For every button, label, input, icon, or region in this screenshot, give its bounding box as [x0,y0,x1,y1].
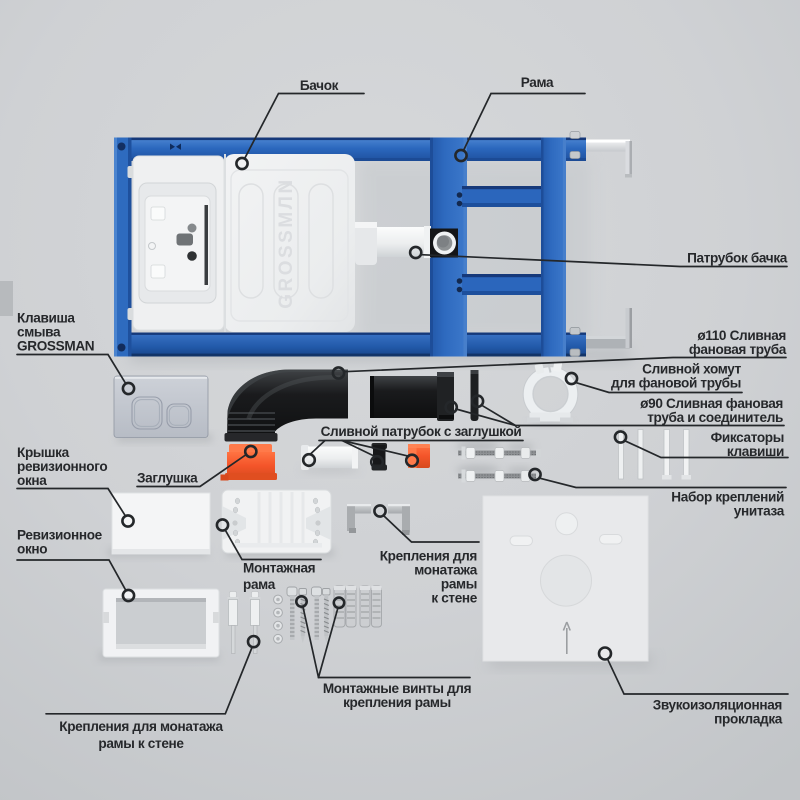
svg-text:рамы к стене: рамы к стене [98,736,184,751]
svg-text:к стене: к стене [431,591,477,606]
svg-text:Ревизионное: Ревизионное [17,528,103,543]
svg-text:труба и соединитель: труба и соединитель [647,410,783,425]
svg-text:Крепления для монатажа: Крепления для монатажа [59,719,223,734]
svg-text:унитаза: унитаза [734,504,785,519]
svg-text:Крышка: Крышка [17,445,70,460]
svg-text:GROSSMAN: GROSSMAN [17,339,94,354]
svg-text:прокладка: прокладка [714,712,783,727]
svg-text:Крепления для: Крепления для [380,549,477,564]
svg-text:Монтажные винты для: Монтажные винты для [323,681,471,696]
svg-text:Клавиша: Клавиша [17,311,75,326]
svg-text:Набор креплений: Набор креплений [671,490,784,505]
svg-text:Звукоизоляционная: Звукоизоляционная [653,698,782,713]
svg-text:Бачок: Бачок [300,78,339,93]
svg-text:окно: окно [17,542,47,557]
svg-text:крепления рамы: крепления рамы [343,695,451,710]
svg-text:фановая труба: фановая труба [689,342,787,357]
svg-text:Монтажная: Монтажная [243,561,315,576]
svg-text:ø90 Сливная фановая: ø90 Сливная фановая [640,396,783,411]
svg-text:Сливной хомут: Сливной хомут [642,362,742,377]
svg-text:Рама: Рама [521,75,554,90]
svg-text:GROSSMЛN: GROSSMЛN [276,177,297,309]
svg-text:ø110 Сливная: ø110 Сливная [697,328,786,343]
svg-text:Фиксаторы: Фиксаторы [711,430,784,445]
svg-text:рамы: рамы [441,577,477,592]
svg-text:монатажа: монатажа [414,563,478,578]
svg-text:Сливной патрубок с заглушкой: Сливной патрубок с заглушкой [321,424,522,439]
svg-text:Патрубок бачка: Патрубок бачка [687,251,788,266]
svg-text:для фановой трубы: для фановой трубы [611,376,741,391]
svg-text:окна: окна [17,473,47,488]
svg-text:смыва: смыва [17,325,61,340]
svg-text:Заглушка: Заглушка [137,471,198,486]
svg-text:ревизионного: ревизионного [17,459,107,474]
svg-text:рама: рама [243,577,276,592]
